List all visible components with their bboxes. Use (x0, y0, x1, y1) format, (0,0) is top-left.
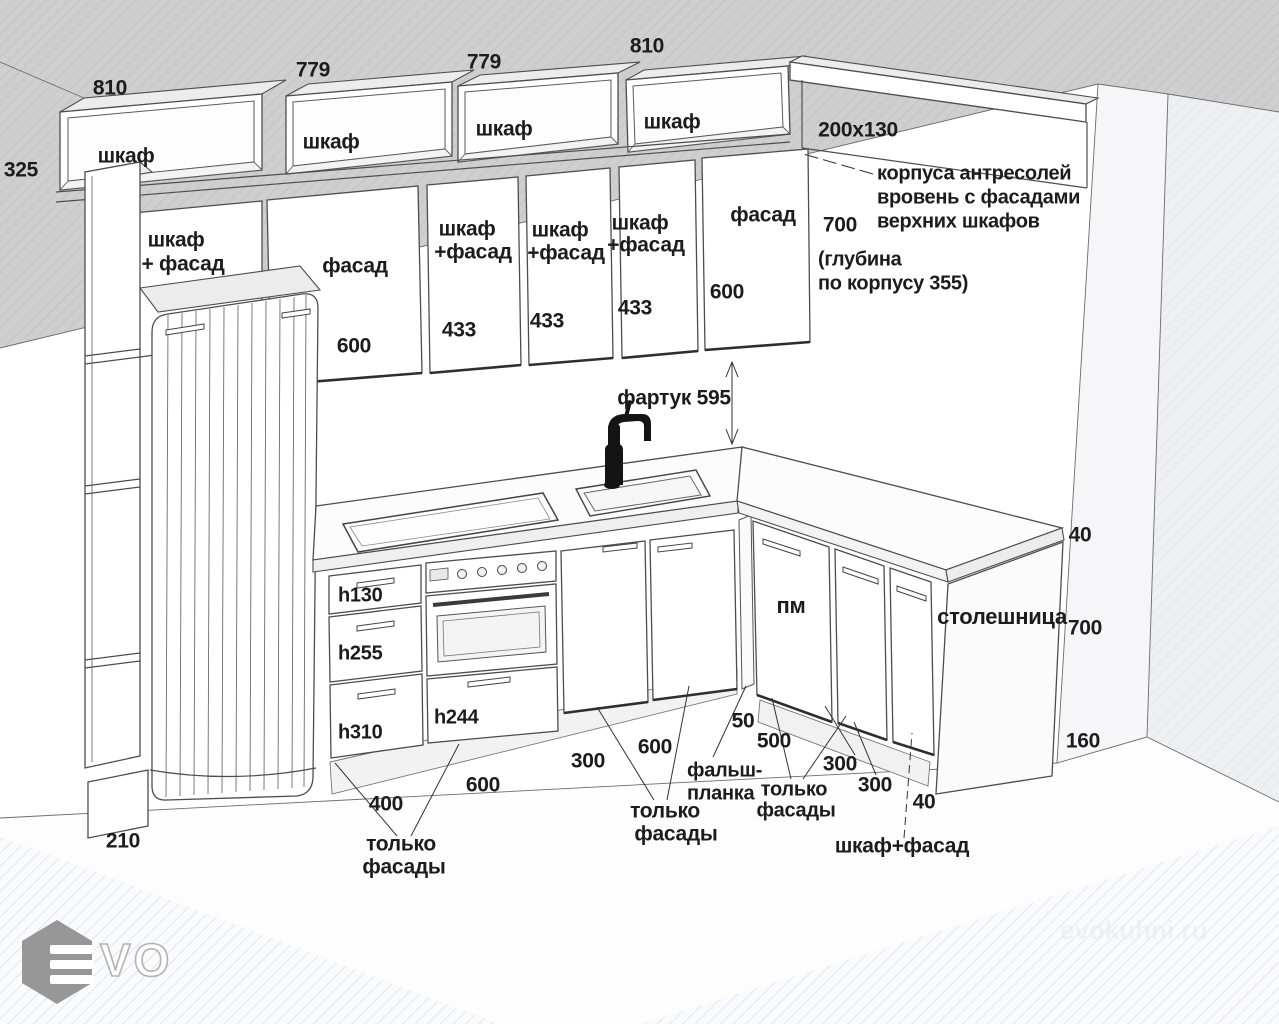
logo-bar (50, 960, 94, 969)
callout-fronts2-l2: фасады (634, 823, 717, 846)
dishwasher-label: пм (777, 593, 806, 618)
drawer-h310 (330, 674, 423, 758)
dim-worktop-40: 40 (1069, 524, 1092, 547)
note-line-2: вровень с фасадами (877, 186, 1080, 208)
tower-plinth (88, 770, 148, 838)
upper3-label-1: шкаф (439, 218, 496, 241)
dim-40-end: 40 (913, 791, 936, 814)
base-door-600 (650, 530, 737, 700)
dim-top-2: 779 (296, 59, 330, 82)
upper2-label: фасад (322, 255, 388, 278)
base-door-300 (561, 541, 648, 713)
upper4-label-1: шкаф (532, 219, 589, 242)
upper-cabinet-4 (526, 168, 613, 365)
oven-display (430, 568, 448, 581)
fridge-column (140, 266, 320, 800)
dim-600-oven: 600 (466, 774, 500, 797)
dim-left-325: 325 (4, 159, 39, 182)
callout-fronts1-l1: только (366, 833, 436, 856)
depth-note-2: по корпусу 355) (818, 272, 968, 294)
oven-knob (478, 568, 487, 577)
upper5-label-2: +фасад (607, 234, 684, 257)
callout-falsh-l1: фальш- (687, 759, 762, 781)
antresol-label-4: шкаф (644, 111, 701, 134)
oven-knob (518, 564, 527, 573)
upper6-size: 600 (710, 281, 744, 304)
upper-cabinet-5 (619, 160, 698, 358)
upper2-size: 600 (337, 335, 371, 358)
corner-filler (739, 515, 754, 689)
drawer-label-h255: h255 (338, 642, 383, 664)
upper5-size: 433 (618, 297, 652, 320)
upper5-label-1: шкаф (612, 212, 669, 235)
note-line-3: верхних шкафов (877, 210, 1040, 232)
upper4-size: 433 (530, 310, 564, 333)
drawing-canvas: 810 779 779 810 325 шкаф шкаф шкаф шкаф … (0, 0, 1279, 1024)
dim-top-3: 779 (467, 51, 501, 74)
drawer-h244 (427, 667, 558, 743)
dim-top-4: 810 (630, 35, 664, 58)
callout-last-cabinet: шкаф+фасад (835, 835, 969, 858)
upper1-label-2: + фасад (142, 253, 225, 276)
drawer-label-h130: h130 (338, 584, 383, 606)
dim-300-d3: 300 (858, 774, 892, 797)
dim-600-sink: 600 (638, 736, 672, 759)
dim-300-d2: 300 (823, 753, 857, 776)
oven-knob (538, 562, 547, 571)
drawer-label-h244: h244 (434, 706, 480, 728)
antresol-label-2: шкаф (303, 131, 360, 154)
note-line-1: корпуса антресолей (877, 162, 1071, 184)
dim-worktop-700: 700 (1068, 617, 1102, 640)
dim-210: 210 (106, 830, 140, 853)
dim-top-1: 810 (93, 77, 127, 100)
dim-400: 400 (369, 793, 403, 816)
upper6-label: фасад (730, 204, 796, 227)
logo-bar (50, 975, 94, 984)
upper1-label-1: шкаф (148, 229, 205, 252)
dim-300-door: 300 (571, 750, 605, 773)
upper-cabinet-6 (702, 149, 810, 350)
dim-upper-height: 700 (823, 214, 857, 237)
drawer-label-h310: h310 (338, 721, 383, 743)
upper3-label-2: +фасад (434, 241, 511, 264)
watermark: evokuhni.ru (1060, 915, 1207, 945)
depth-note-1: (глубина (818, 248, 903, 270)
dim-plinth-160: 160 (1066, 730, 1100, 753)
upper-cabinet-3 (427, 177, 521, 373)
oven-knob (498, 566, 507, 575)
logo-bar (50, 945, 94, 954)
niche-dim-label: 200x130 (818, 119, 898, 142)
worktop-label: столешница (937, 604, 1068, 629)
apron-label: фартук 595 (617, 387, 731, 410)
antresol-label-3: шкаф (476, 118, 533, 141)
upper4-label-2: +фасад (527, 242, 604, 265)
logo-text: VO (100, 934, 172, 986)
right-wall (1147, 94, 1279, 802)
dim-500: 500 (757, 730, 791, 753)
kitchen-drawing: 810 779 779 810 325 шкаф шкаф шкаф шкаф … (0, 0, 1279, 1024)
antresol-label-1: шкаф (98, 145, 155, 168)
oven-window (437, 606, 546, 662)
callout-fronts3-l2: фасады (756, 799, 835, 821)
dim-50: 50 (732, 710, 755, 733)
callout-fronts3-l1: только (761, 778, 827, 800)
oven-knob (458, 570, 467, 579)
callout-fronts1-l2: фасады (362, 856, 445, 879)
callout-falsh-l2: планка (687, 782, 755, 804)
upper3-size: 433 (442, 319, 476, 342)
